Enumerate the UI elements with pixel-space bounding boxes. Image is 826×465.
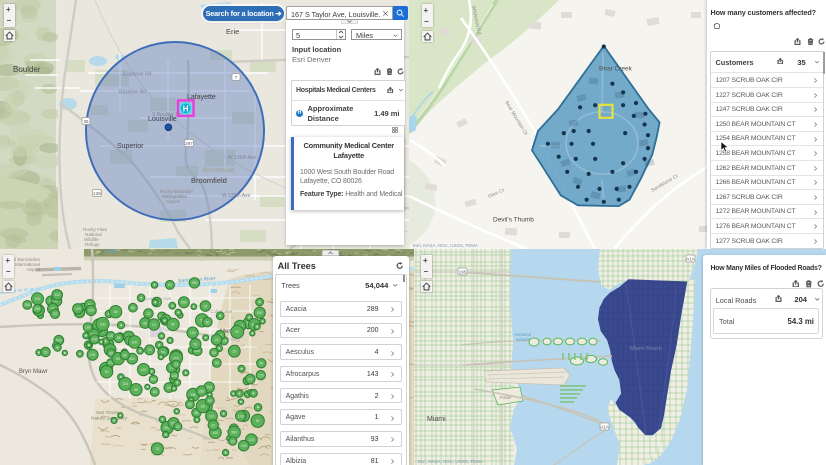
svg-text:Refuge: Refuge [85,242,100,247]
svg-text:68: 68 [123,353,127,357]
svg-text:68: 68 [188,403,192,407]
svg-text:120: 120 [108,334,114,338]
svg-text:68: 68 [114,310,118,314]
svg-text:120: 120 [90,353,96,357]
svg-text:7: 7 [235,75,238,80]
svg-text:100: 100 [171,374,177,378]
svg-text:100: 100 [212,431,218,435]
svg-text:500: 500 [129,357,135,361]
svg-text:100: 100 [85,326,91,330]
svg-text:68: 68 [153,390,157,394]
svg-text:A1A: A1A [600,424,609,429]
svg-text:50: 50 [235,330,239,334]
svg-text:500: 500 [151,378,157,382]
svg-text:50: 50 [168,283,172,287]
svg-text:Fisher: Fisher [500,395,512,400]
svg-text:250: 250 [192,281,198,285]
svg-text:23: 23 [152,323,156,327]
svg-text:100: 100 [241,444,247,448]
svg-text:250: 250 [206,386,212,390]
svg-text:A1A: A1A [686,256,695,261]
svg-text:250: 250 [199,389,205,393]
svg-text:120: 120 [141,368,147,372]
svg-text:23: 23 [148,348,152,352]
svg-text:100: 100 [238,414,244,418]
svg-text:120: 120 [249,438,255,442]
svg-text:50: 50 [256,419,260,423]
svg-text:50: 50 [212,351,216,355]
svg-text:50: 50 [215,361,219,365]
svg-text:195: 195 [459,269,467,274]
svg-text:23: 23 [44,350,48,354]
svg-text:250: 250 [88,309,94,313]
svg-text:23: 23 [248,377,252,381]
svg-text:100: 100 [75,307,81,311]
svg-text:Miami Beach: Miami Beach [630,346,662,352]
svg-text:23: 23 [215,338,219,342]
svg-text:Superior: Superior [117,143,144,150]
svg-text:Bear Creek: Bear Creek [599,66,633,73]
svg-text:68: 68 [131,306,135,310]
svg-text:Broomfield: Broomfield [203,167,234,174]
svg-text:Erie: Erie [226,27,239,36]
svg-text:120: 120 [54,293,60,297]
svg-text:Airport: Airport [166,199,180,204]
svg-text:100: 100 [92,338,98,342]
svg-text:Baseline Rd: Baseline Rd [119,90,146,96]
svg-text:68: 68 [134,388,138,392]
svg-text:500: 500 [231,431,237,435]
svg-text:250: 250 [34,307,40,311]
svg-text:50: 50 [194,342,198,346]
svg-text:W 136th Ave: W 136th Ave [228,155,256,161]
svg-text:68: 68 [143,321,147,325]
svg-text:23: 23 [231,439,235,443]
svg-text:W 120th Ave: W 120th Ave [222,193,250,199]
svg-text:68: 68 [109,351,113,355]
svg-text:Boulder: Boulder [13,65,41,74]
svg-text:50: 50 [259,362,263,366]
svg-text:100: 100 [100,322,106,326]
svg-text:68: 68 [117,336,121,340]
svg-text:Broomfield: Broomfield [191,176,227,185]
svg-text:Creek: Creek [104,249,118,255]
svg-text:50: 50 [116,357,120,361]
svg-text:Devil's Thumb: Devil's Thumb [493,217,534,224]
svg-text:50: 50 [206,320,210,324]
svg-text:50: 50 [171,323,175,327]
svg-text:Bryn Mawr: Bryn Mawr [19,369,48,375]
svg-text:23: 23 [53,312,57,316]
svg-text:Arapahoe Rd: Arapahoe Rd [122,72,152,78]
svg-text:23: 23 [174,363,178,367]
svg-text:100: 100 [122,382,128,386]
svg-text:Islands: Islands [516,337,531,342]
svg-text:36: 36 [83,119,89,124]
svg-text:H: H [183,104,189,113]
svg-text:287: 287 [185,141,193,146]
svg-text:50: 50 [105,370,109,374]
svg-text:500: 500 [257,311,263,315]
svg-text:250: 250 [190,393,196,397]
svg-text:100: 100 [35,297,41,301]
svg-text:500: 500 [181,301,187,305]
svg-text:128: 128 [93,191,101,196]
svg-text:23: 23 [232,350,236,354]
svg-text:68: 68 [201,404,205,408]
svg-text:50: 50 [208,399,212,403]
svg-text:23: 23 [176,425,180,429]
svg-text:Esri, NASA, NGA, USGS, FEMA: Esri, NASA, NGA, USGS, FEMA [418,459,483,464]
svg-text:23: 23 [204,304,208,308]
svg-text:120: 120 [190,331,196,335]
svg-text:68: 68 [195,411,199,415]
svg-text:120: 120 [258,374,264,378]
svg-text:Airport: Airport [26,267,40,272]
svg-text:250: 250 [24,303,30,307]
svg-text:120: 120 [209,414,215,418]
svg-text:23: 23 [211,423,215,427]
svg-text:100: 100 [132,340,138,344]
svg-text:Miami: Miami [427,416,446,423]
svg-text:Esri, NASA, NGA, USGS, FEMA: Esri, NASA, NGA, USGS, FEMA [413,243,478,248]
svg-text:68: 68 [167,386,171,390]
svg-text:23: 23 [156,447,160,451]
svg-text:23: 23 [147,312,151,316]
